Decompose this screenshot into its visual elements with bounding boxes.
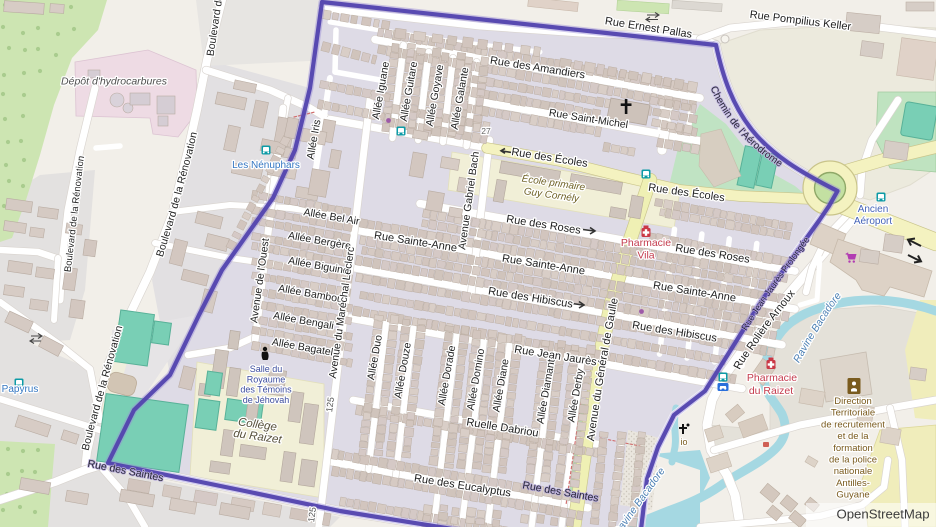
svg-text:125: 125 (306, 506, 318, 522)
svg-text:Les Nénuphars: Les Nénuphars (232, 160, 300, 171)
svg-text:de la police: de la police (829, 455, 877, 466)
svg-text:des Témoins: des Témoins (240, 385, 292, 395)
svg-text:Ancien: Ancien (858, 204, 889, 215)
svg-text:Direction: Direction (834, 396, 872, 407)
svg-text:Royaume: Royaume (247, 375, 286, 385)
svg-text:Pharmacie: Pharmacie (621, 237, 671, 249)
svg-text:io: io (680, 437, 687, 447)
svg-text:OpenStreetMap: OpenStreetMap (836, 507, 929, 522)
svg-text:de Jéhovah: de Jéhovah (243, 395, 290, 405)
svg-text:de recrutement: de recrutement (821, 419, 885, 430)
svg-text:Pharmacie: Pharmacie (747, 372, 797, 384)
svg-text:Territoriale: Territoriale (831, 408, 875, 419)
svg-text:125: 125 (324, 396, 336, 412)
svg-text:nationale: nationale (834, 466, 873, 477)
svg-text:Guyane: Guyane (836, 490, 869, 501)
svg-text:Vila: Vila (637, 250, 654, 262)
svg-text:Dépôt d'hydrocarbures: Dépôt d'hydrocarbures (61, 76, 168, 88)
svg-text:Antilles-: Antilles- (836, 478, 870, 489)
svg-text:du Raizet: du Raizet (749, 385, 793, 397)
svg-text:Papyrus: Papyrus (2, 384, 39, 395)
svg-text:Aéroport: Aéroport (854, 216, 893, 227)
svg-text:formation: formation (833, 443, 873, 454)
svg-text:27: 27 (481, 126, 491, 136)
svg-text:Salle du: Salle du (250, 364, 283, 374)
svg-text:et de la: et de la (837, 431, 869, 442)
